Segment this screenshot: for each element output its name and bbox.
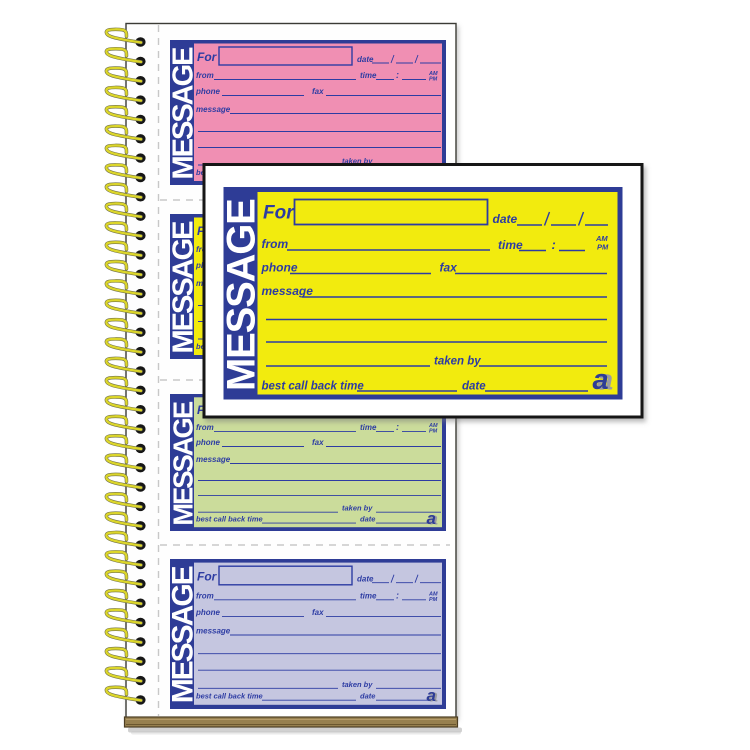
svg-text:MESSAGE: MESSAGE xyxy=(167,566,200,703)
svg-text:date: date xyxy=(493,212,518,226)
svg-text:best call back time: best call back time xyxy=(196,692,263,701)
svg-text:a: a xyxy=(593,364,609,396)
svg-text:phone: phone xyxy=(195,87,221,96)
svg-text:taken by: taken by xyxy=(342,680,373,689)
svg-text:fax: fax xyxy=(312,87,324,96)
svg-text:message: message xyxy=(196,105,231,114)
svg-text:For: For xyxy=(263,203,295,224)
svg-text:PM: PM xyxy=(597,243,609,252)
svg-text:time: time xyxy=(360,71,377,80)
svg-text:best call back time: best call back time xyxy=(262,381,365,393)
svg-text:fax: fax xyxy=(312,438,324,447)
svg-text:MESSAGE: MESSAGE xyxy=(168,221,200,354)
svg-text:from: from xyxy=(262,237,289,251)
svg-text:message: message xyxy=(262,284,314,298)
svg-text:phone: phone xyxy=(195,608,221,617)
svg-text:date: date xyxy=(360,692,375,701)
svg-text:For: For xyxy=(197,50,218,64)
svg-text:fax: fax xyxy=(312,608,324,617)
svg-text:time: time xyxy=(360,423,377,432)
svg-text:from: from xyxy=(196,591,214,600)
svg-text::: : xyxy=(396,422,399,432)
svg-text:MESSAGE: MESSAGE xyxy=(220,199,264,391)
svg-text:PM: PM xyxy=(429,597,438,603)
svg-text:phone: phone xyxy=(195,438,221,447)
svg-text:PM: PM xyxy=(429,428,438,434)
svg-text:a: a xyxy=(427,686,436,705)
svg-text:date: date xyxy=(357,575,374,584)
svg-text:from: from xyxy=(196,423,214,432)
svg-text:fax: fax xyxy=(440,261,459,275)
svg-text:from: from xyxy=(196,71,214,80)
svg-text:MESSAGE: MESSAGE xyxy=(168,401,199,526)
svg-text:date: date xyxy=(462,381,486,393)
svg-text:taken by: taken by xyxy=(434,356,481,368)
svg-text:phone: phone xyxy=(261,261,298,275)
svg-text:message: message xyxy=(196,627,231,636)
svg-text:date: date xyxy=(357,55,374,64)
svg-text::: : xyxy=(552,237,556,252)
svg-text:date: date xyxy=(360,515,375,524)
svg-text:MESSAGE: MESSAGE xyxy=(168,47,200,180)
svg-text::: : xyxy=(396,590,399,600)
svg-text:time: time xyxy=(360,591,377,600)
svg-text:best call back time: best call back time xyxy=(196,515,263,524)
svg-text:PM: PM xyxy=(429,77,438,83)
svg-text:taken by: taken by xyxy=(342,504,373,513)
svg-text:For: For xyxy=(197,570,218,584)
svg-text:message: message xyxy=(196,455,231,464)
svg-text:a: a xyxy=(427,509,436,528)
svg-text::: : xyxy=(396,70,399,80)
